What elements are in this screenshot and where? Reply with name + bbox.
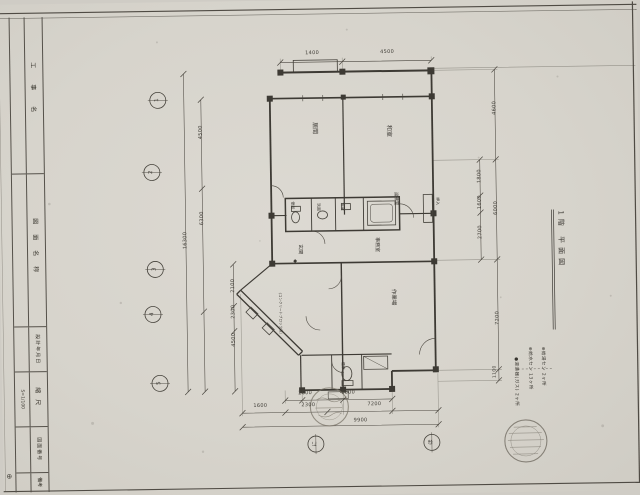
title-block-cell-date: 設計年月日 — [14, 327, 47, 372]
dim-left-4: 2300 — [231, 297, 236, 327]
title-rule — [551, 210, 555, 330]
title-block: 工事名 図面名称 設計年月日 S=1/100 縮尺 図面番号 備考 — [9, 17, 50, 492]
title-block-cell-scale: S=1/100 縮尺 — [15, 372, 48, 427]
title-block-cell-drawing-number: 図面番号 — [16, 427, 49, 473]
room-label-living: 居間 — [311, 122, 318, 156]
dim-bottom-total: 9900 — [347, 418, 375, 423]
closet-box — [423, 194, 432, 222]
dim-bottom-3: 2300 — [294, 403, 322, 408]
registration-mark: ⊕ — [6, 473, 12, 481]
date-label: 設計年月日 — [34, 334, 41, 364]
dim-right-0: 4600 — [492, 93, 497, 123]
dim-left-5: 4500 — [232, 325, 237, 355]
room-label-workshop: 作業場 — [390, 289, 396, 319]
dim-bottom-1: 1800 — [334, 390, 362, 395]
sheet-title: 1階 平面図 — [556, 210, 565, 330]
project-name-label: 工事名 — [29, 62, 39, 128]
grid-bubbles — [140, 88, 440, 456]
dim-top-1: 4500 — [372, 50, 402, 55]
room-label-toilet: 便所 — [290, 201, 294, 221]
entrance-marker: ◆ — [293, 258, 297, 264]
dimension-lines — [180, 53, 640, 431]
grid-left-3: 3 — [152, 261, 158, 277]
grid-bottom-2: ほ — [429, 434, 435, 450]
title-block-cell-project: 工事名 — [10, 17, 44, 174]
dim-right-2: 1600 — [478, 187, 483, 217]
room-label-washroom: 洗面 — [316, 203, 320, 223]
legend-item-3: ●湯沸器(ガス) 2ヶ所 — [513, 357, 519, 449]
dim-right-6: 1100 — [493, 357, 498, 387]
dim-right-4: 2700 — [478, 217, 483, 247]
legend-text-3: 湯沸器(ガス) 2ヶ所 — [513, 362, 519, 407]
dim-top-0: 1400 — [297, 51, 327, 56]
scanned-sheet: 工事名 図面名称 設計年月日 S=1/100 縮尺 図面番号 備考 ⊕ 1階 平… — [0, 0, 640, 495]
grid-left-5: 5 — [157, 375, 163, 391]
walls — [233, 58, 438, 391]
dim-bottom-2: 1600 — [246, 404, 274, 409]
room-label-kitchenette: 湯沸室 — [392, 192, 397, 218]
drawing-number-label: 図面番号 — [36, 438, 43, 462]
legend-leader — [518, 369, 552, 370]
scale-value: S=1/100 — [19, 390, 24, 410]
legend-item-2: ⊕給水セン 13ヶ所 — [526, 347, 532, 435]
dim-right-3: 6000 — [494, 193, 499, 223]
room-label-bath: 浴室 — [340, 203, 344, 223]
paper: 工事名 図面名称 設計年月日 S=1/100 縮尺 図面番号 備考 ⊕ 1階 平… — [0, 0, 640, 495]
room-label-japanese-room: 和室 — [385, 125, 392, 159]
garage-material-note: (コンクリートブロック造) — [278, 293, 283, 361]
scale-label: 縮尺 — [34, 387, 43, 411]
room-label-office: 事務室 — [374, 237, 379, 263]
drawing-name-label: 図面名称 — [31, 218, 41, 282]
dim-right-5: 7200 — [495, 303, 500, 333]
remarks-label: 備考 — [36, 478, 43, 488]
room-label-wc-lower: 便所 — [341, 362, 345, 382]
dim-left-total: 16300 — [183, 223, 189, 257]
grid-bottom-1: に — [313, 436, 319, 452]
dim-left-1: 6300 — [200, 203, 205, 233]
dim-left-0: 4500 — [199, 117, 204, 147]
grid-left-2: 2 — [149, 164, 155, 180]
legend-text-1: 給湯セン 2ヶ所 — [540, 351, 546, 386]
grid-left-4: 4 — [150, 306, 156, 322]
dim-bottom-4: 7200 — [360, 402, 388, 407]
legend-text-2: 給水セン 13ヶ所 — [527, 351, 533, 390]
fixtures — [244, 194, 435, 400]
room-label-entrance: 玄関 — [297, 244, 302, 264]
legend-item-1: ⊕給湯セン 2ヶ所 — [539, 347, 545, 435]
title-block-cell-remarks: 備考 — [16, 473, 48, 492]
garage-door-panels — [246, 307, 274, 335]
title-block-cell-drawing-name: 図面名称 — [12, 174, 46, 327]
dim-bottom-0: 2600 — [291, 391, 319, 396]
room-label-closet: 押入 — [435, 197, 439, 217]
grid-left-1: 1 — [155, 92, 161, 108]
